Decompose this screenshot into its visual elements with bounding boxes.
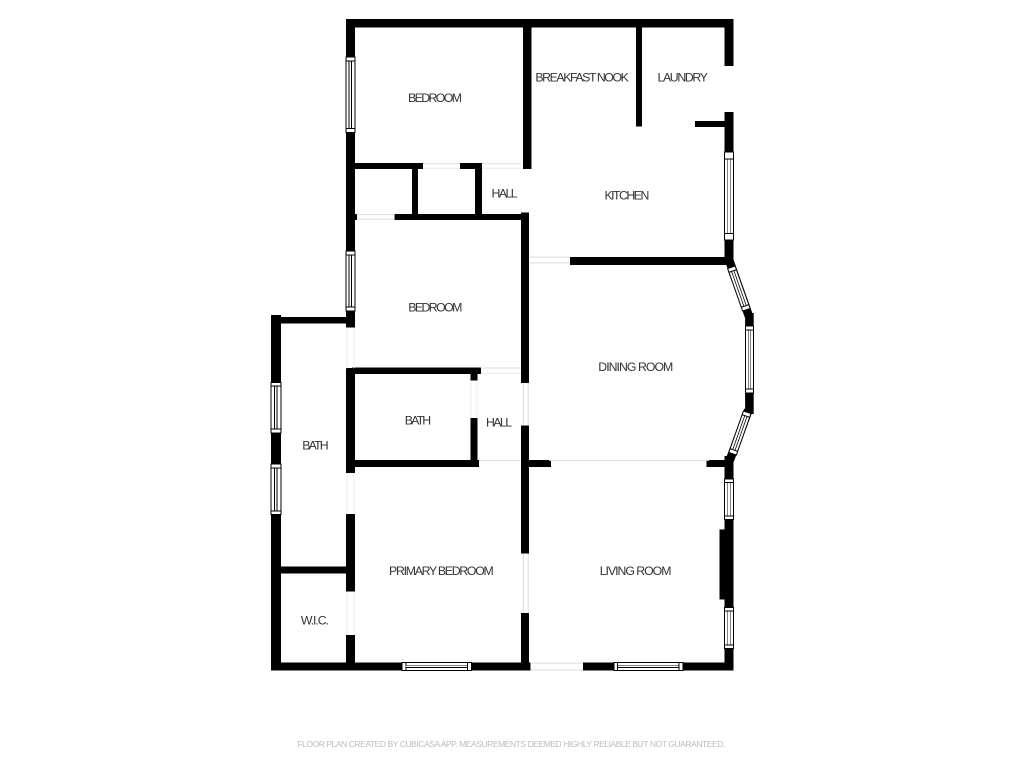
svg-text:BREAKFAST NOOK: BREAKFAST NOOK [535,70,629,84]
svg-text:DINING ROOM: DINING ROOM [598,360,673,374]
svg-text:HALL: HALL [492,186,518,200]
svg-text:PRIMARY BEDROOM: PRIMARY BEDROOM [389,564,494,578]
svg-text:LAUNDRY: LAUNDRY [657,70,708,84]
svg-text:BATH: BATH [302,438,328,452]
svg-text:W.I.C.: W.I.C. [301,613,329,627]
svg-text:LIVING ROOM: LIVING ROOM [600,564,672,578]
svg-text:HALL: HALL [486,415,512,429]
svg-text:BATH: BATH [405,413,431,427]
svg-text:FLOOR PLAN CREATED BY CUBICASA: FLOOR PLAN CREATED BY CUBICASA APP. MEAS… [297,739,725,749]
svg-text:BEDROOM: BEDROOM [408,300,462,314]
svg-text:KITCHEN: KITCHEN [604,189,649,203]
svg-text:BEDROOM: BEDROOM [408,91,462,105]
